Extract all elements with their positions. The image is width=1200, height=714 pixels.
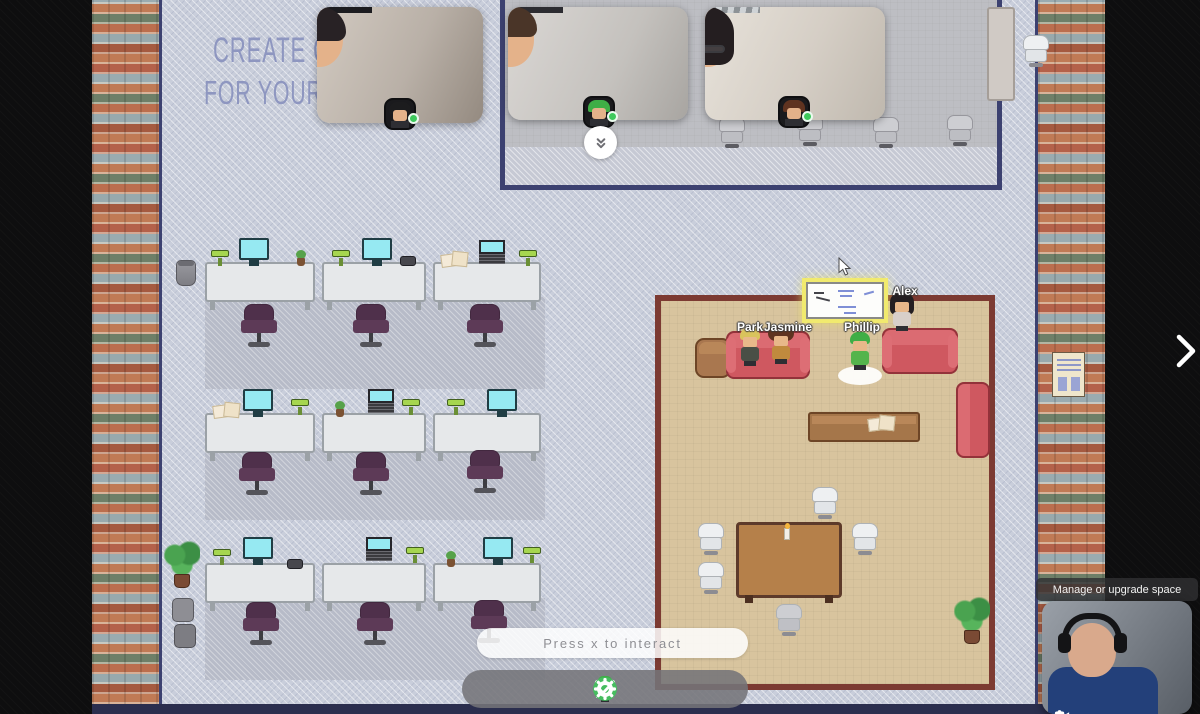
- player-name: Phillip: [844, 320, 880, 334]
- left-black-panel: [0, 0, 92, 714]
- office-chair: [466, 450, 504, 496]
- desk: [205, 262, 315, 302]
- player-name: Alex: [892, 284, 917, 298]
- candle: [784, 528, 790, 540]
- chair: [698, 523, 724, 556]
- player-avatar-alex[interactable]: [889, 293, 915, 331]
- desk: [205, 413, 315, 453]
- brick-wall-left: [92, 0, 162, 714]
- chair: [698, 562, 724, 595]
- desk: [322, 563, 426, 603]
- chair: [947, 115, 973, 147]
- bottom-toolbar: [462, 670, 748, 708]
- settings-button[interactable]: [591, 675, 619, 703]
- chair: [852, 523, 878, 556]
- status-online-dot: [607, 111, 618, 122]
- interaction-prompt: Press x to interact: [477, 628, 748, 658]
- office-chair: [238, 452, 276, 498]
- desk: [433, 262, 541, 302]
- chair: [873, 117, 899, 149]
- trash-can: [176, 260, 196, 286]
- player-name: Park: [737, 320, 763, 334]
- couch: [882, 328, 958, 374]
- self-video-tile[interactable]: [1042, 601, 1192, 714]
- double-chevron-down-icon: [591, 133, 611, 153]
- chevron-right-icon: [1174, 332, 1198, 370]
- chair: [1023, 35, 1049, 68]
- office-chair: [242, 602, 280, 648]
- status-online-dot: [408, 113, 419, 124]
- office-chair: [352, 452, 390, 498]
- expand-panel-button[interactable]: [1172, 330, 1200, 372]
- sideboard: [808, 412, 920, 442]
- office-chair: [356, 602, 394, 648]
- gear-icon: [593, 677, 617, 701]
- desk: [322, 413, 426, 453]
- wall-notice: [1052, 352, 1085, 397]
- desk: [433, 563, 541, 603]
- room-floor-band: [505, 147, 997, 185]
- trash-bins: [172, 598, 196, 650]
- collapse-videos-button[interactable]: [584, 126, 617, 159]
- chair: [776, 604, 802, 637]
- desk: [433, 413, 541, 453]
- whiteboard[interactable]: [806, 282, 884, 319]
- couch-vertical: [956, 382, 990, 458]
- office-chair: [352, 304, 390, 350]
- table: [987, 7, 1015, 101]
- player-avatar-phillip[interactable]: [847, 332, 873, 370]
- status-online-dot: [802, 111, 813, 122]
- player-name: Jasmine: [764, 320, 812, 334]
- office-chair: [466, 304, 504, 350]
- desk: [322, 262, 426, 302]
- virtual-office-app: CREATE CU FOR YOUR U: [0, 0, 1200, 714]
- office-chair: [240, 304, 278, 350]
- space-tooltip: Manage or upgrade space: [1036, 578, 1198, 601]
- camera-icon[interactable]: [1052, 707, 1072, 714]
- mouse-cursor: [838, 257, 852, 277]
- chair: [719, 117, 745, 149]
- chair: [812, 487, 838, 520]
- desk: [205, 563, 315, 603]
